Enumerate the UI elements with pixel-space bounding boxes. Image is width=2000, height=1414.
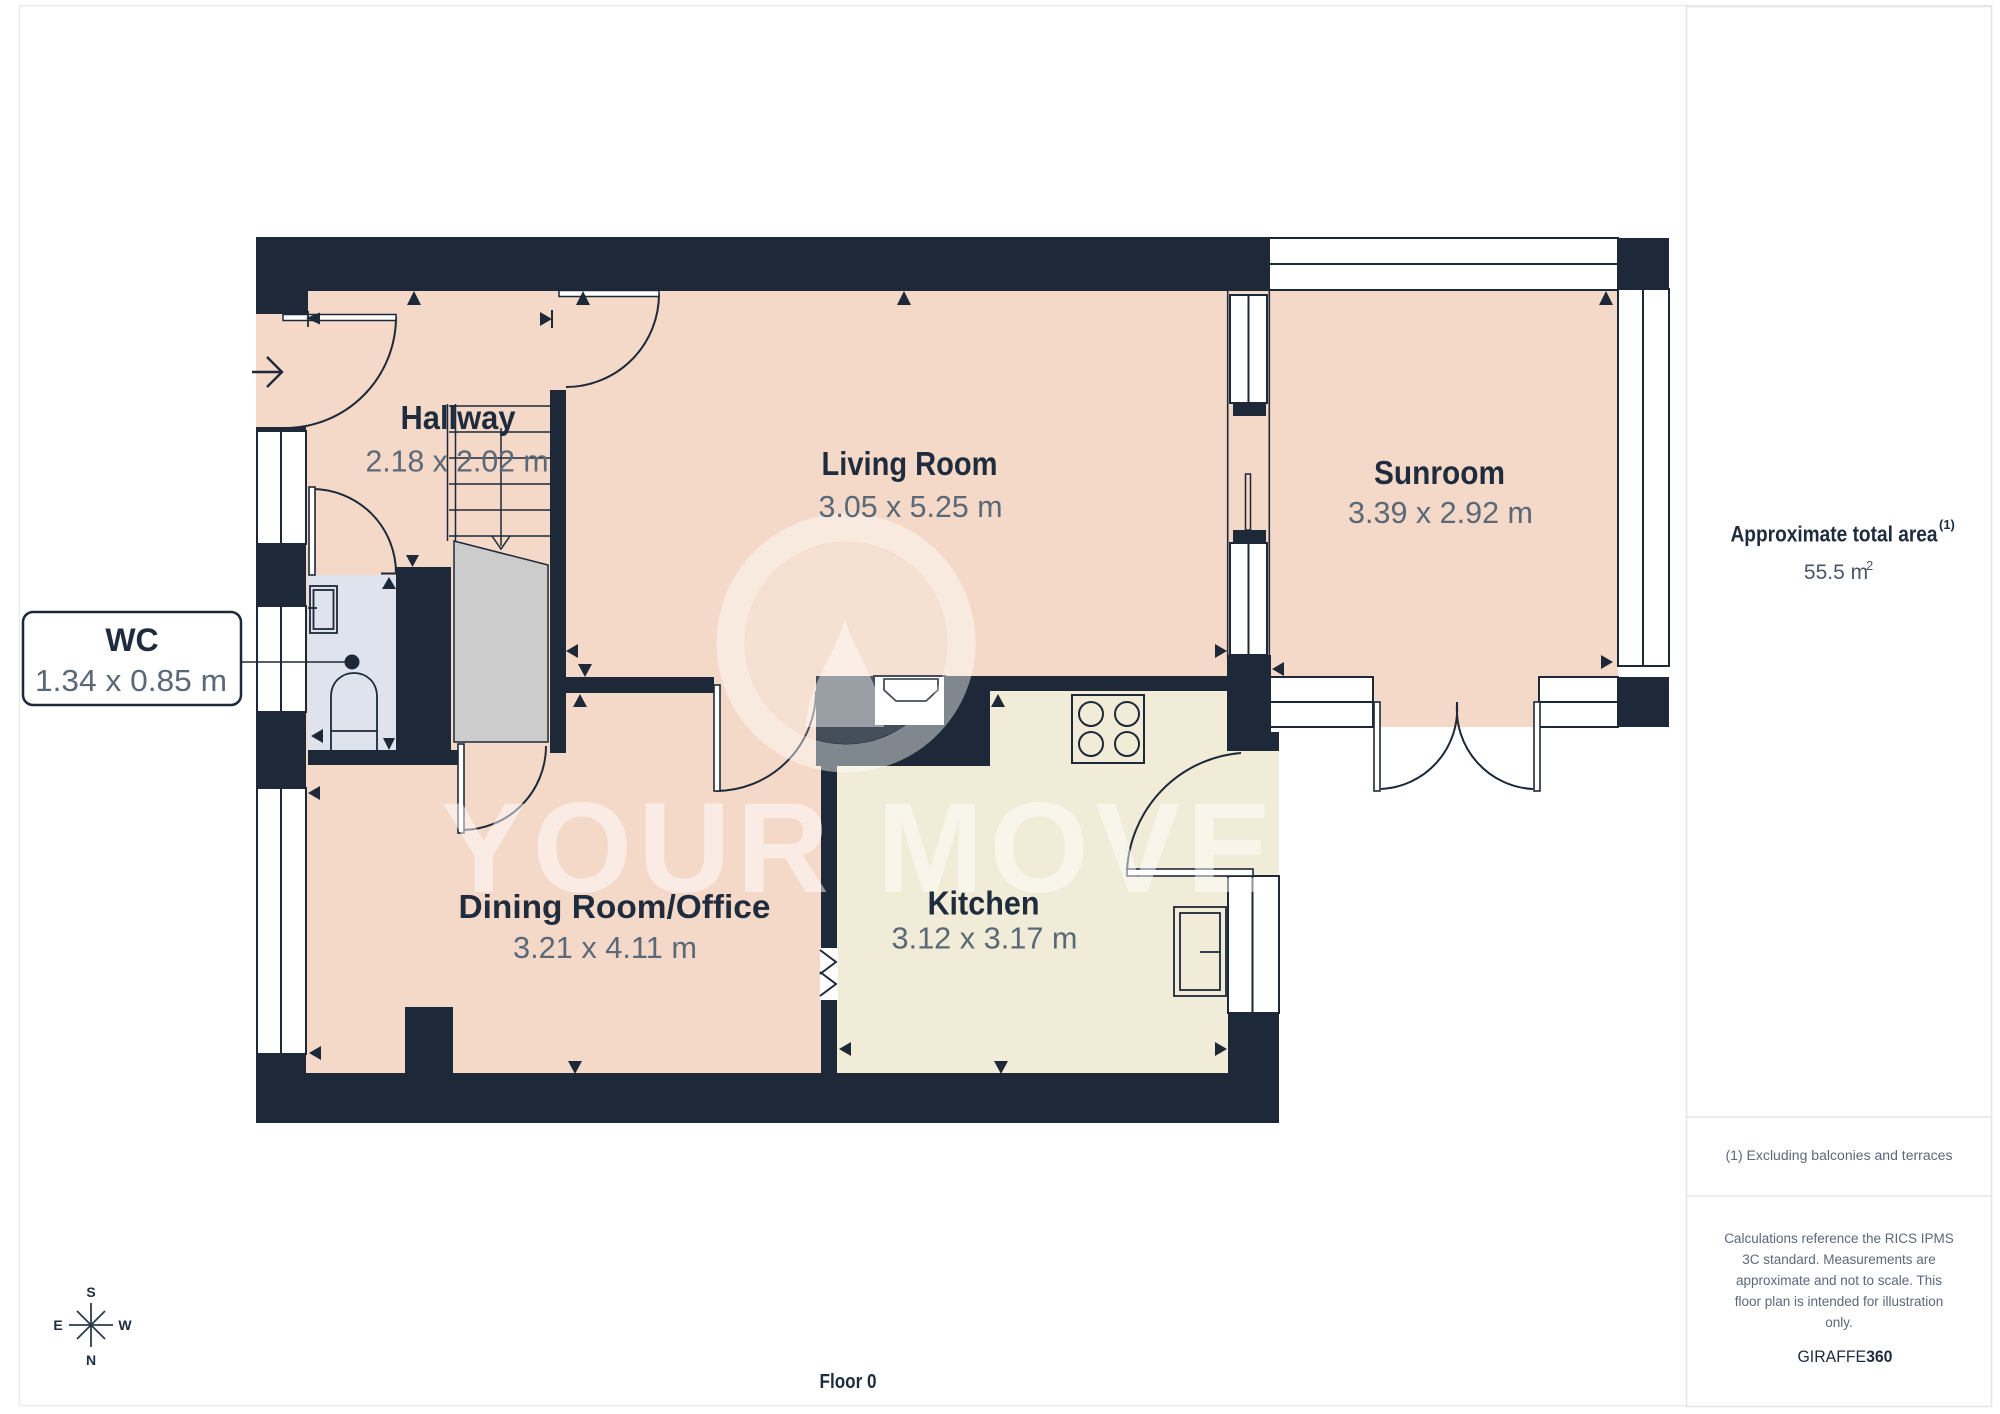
svg-text:S: S [86,1284,95,1300]
svg-text:approximate and not to scale.: approximate and not to scale. This [1736,1273,1942,1288]
svg-text:3.05 x 5.25 m: 3.05 x 5.25 m [819,489,1003,524]
svg-text:55.5 m: 55.5 m [1804,561,1868,584]
svg-text:GIRAFFE360: GIRAFFE360 [1798,1348,1893,1366]
svg-text:Floor 0: Floor 0 [820,1371,877,1393]
svg-text:3.39 x 2.92 m: 3.39 x 2.92 m [1348,495,1533,530]
svg-text:N: N [86,1352,96,1368]
svg-text:E: E [53,1317,62,1333]
svg-text:3C standard. Measurements are: 3C standard. Measurements are [1742,1252,1936,1267]
svg-text:floor plan is intended for ill: floor plan is intended for illustration [1735,1294,1944,1309]
svg-text:(1): (1) [1939,517,1955,532]
svg-text:WC: WC [105,622,158,658]
svg-text:Dining Room/Office: Dining Room/Office [459,888,771,925]
svg-text:3.12 x 3.17 m: 3.12 x 3.17 m [892,921,1078,956]
svg-text:Hallway: Hallway [401,399,517,436]
svg-text:3.21 x 4.11 m: 3.21 x 4.11 m [513,930,697,965]
svg-text:Calculations reference the RIC: Calculations reference the RICS IPMS [1724,1231,1954,1246]
svg-text:Approximate total area: Approximate total area [1731,522,1939,547]
svg-text:only.: only. [1825,1315,1853,1330]
svg-text:Sunroom: Sunroom [1374,454,1505,491]
svg-text:2.18 x 2.02 m: 2.18 x 2.02 m [366,444,549,479]
svg-text:1.34 x 0.85 m: 1.34 x 0.85 m [35,663,227,698]
svg-text:W: W [118,1317,132,1333]
svg-text:Kitchen: Kitchen [928,885,1040,922]
svg-text:(1) Excluding balconies and te: (1) Excluding balconies and terraces [1726,1148,1953,1163]
svg-text:2: 2 [1866,558,1873,573]
svg-text:Living Room: Living Room [822,445,998,482]
